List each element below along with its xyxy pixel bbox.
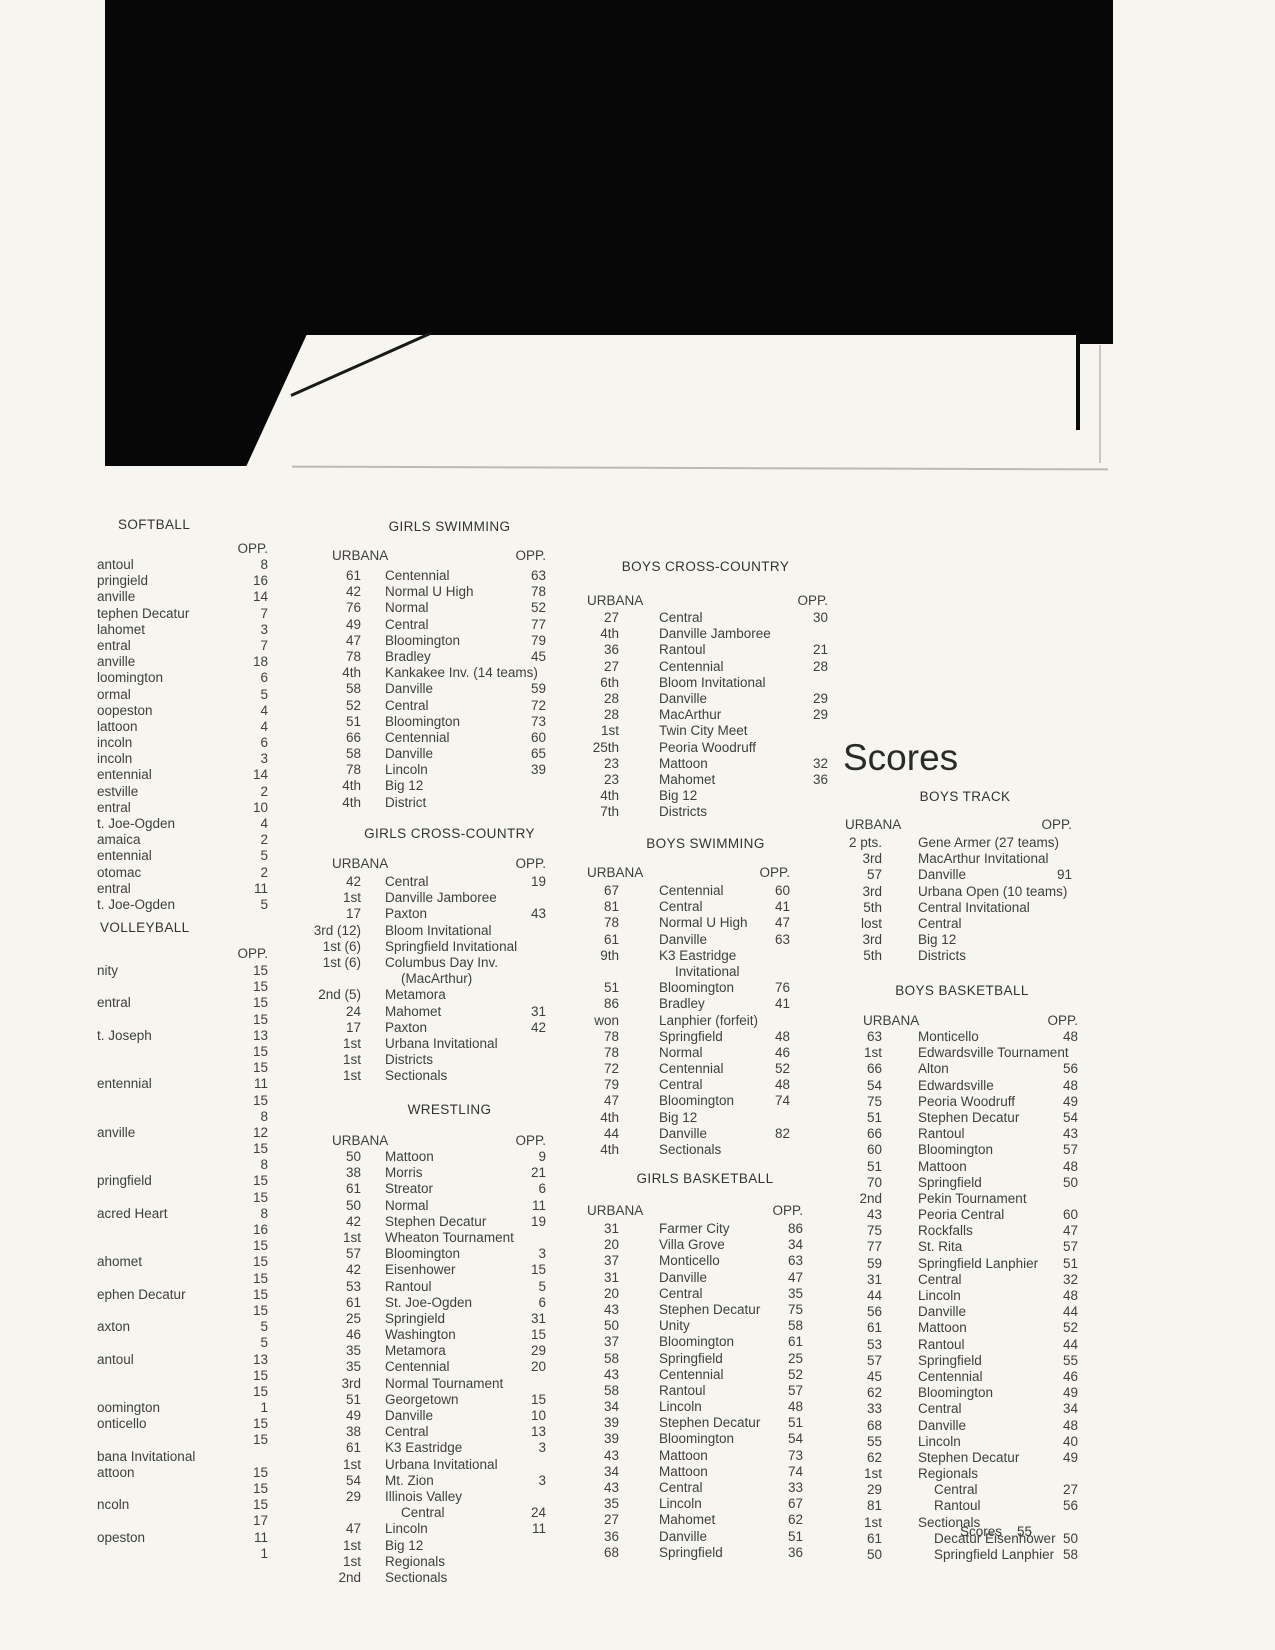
opponent-name: ephen Decatur	[97, 1287, 253, 1303]
opponent-score: 75	[788, 1302, 803, 1318]
opponent-score: 15	[253, 1141, 268, 1157]
score-row: 15	[97, 1044, 268, 1060]
opponent-score: 51	[1063, 1256, 1078, 1272]
opponent-name: Danville	[659, 691, 813, 707]
opponent-name: Rantoul	[659, 1383, 788, 1399]
opponent-name: Invitational	[659, 964, 790, 980]
urbana-score: 20	[557, 1286, 619, 1302]
urbana-score: 51	[838, 1110, 882, 1126]
opponent-score: 57	[1063, 1239, 1078, 1255]
urbana-score: 79	[557, 1077, 619, 1093]
score-row: pringield16	[97, 573, 268, 589]
opponent-name: Springfield Lanphier	[918, 1256, 1063, 1272]
score-row: 36Danville51	[557, 1529, 803, 1545]
opponent-name: Metamora	[385, 1343, 531, 1359]
score-row: 27Mahomet62	[557, 1512, 803, 1528]
score-row: 15	[97, 1432, 268, 1448]
opponent-score: 73	[531, 714, 546, 730]
opponent-name: Georgetown	[385, 1392, 531, 1408]
score-row: 1st (6)Columbus Day Inv.	[313, 955, 546, 971]
opponent-score: 15	[531, 1392, 546, 1408]
opponent-name: Centennial	[659, 1367, 788, 1383]
softball-section: SOFTBALL OPP. antoul8pringield16anville1…	[97, 516, 268, 913]
score-row: t. Joe-Ogden4	[97, 816, 268, 832]
opponent-score: 52	[1063, 1320, 1078, 1336]
score-row: 38Morris21	[313, 1165, 546, 1181]
opponent-name: attoon	[97, 1465, 253, 1481]
score-row: 59Springfield Lanphier51	[838, 1256, 1078, 1272]
opponent-score: 10	[531, 1408, 546, 1424]
urbana-score: 72	[557, 1061, 619, 1077]
opp-column-label: OPP.	[515, 856, 546, 872]
opponent-score: 61	[788, 1334, 803, 1350]
opponent-name: Wheaton Tournament	[385, 1230, 546, 1246]
score-row: 79Central48	[557, 1077, 790, 1093]
boys-cross-country-section: BOYS CROSS-COUNTRY URBANAOPP. 27Central3…	[557, 558, 828, 820]
opponent-name: Districts	[918, 948, 1072, 964]
urbana-score: 1st (6)	[313, 955, 361, 971]
score-row: entennial5	[97, 848, 268, 864]
urbana-score: 1st	[838, 1045, 882, 1061]
opponent-score: 60	[775, 883, 790, 899]
urbana-score: 42	[313, 1214, 361, 1230]
opponent-score: 33	[788, 1480, 803, 1496]
opponent-score: 15	[253, 995, 268, 1011]
score-row: oomington1	[97, 1400, 268, 1416]
urbana-score: 51	[838, 1159, 882, 1175]
score-row: ephen Decatur15	[97, 1287, 268, 1303]
opponent-name: Central	[385, 698, 531, 714]
urbana-score: 42	[313, 874, 361, 890]
opponent-score: 9	[538, 1149, 546, 1165]
opponent-score: 16	[253, 1222, 268, 1238]
opponent-name: MacArthur	[659, 707, 813, 723]
opponent-name: (MacArthur)	[385, 971, 546, 987]
urbana-score: 53	[313, 1279, 361, 1295]
opponent-name: ormal	[97, 687, 260, 703]
scan-artifact-black-notch	[1080, 335, 1113, 344]
opponent-score: 63	[775, 932, 790, 948]
score-row: 75Rockfalls47	[838, 1223, 1078, 1239]
opponent-name: Lincoln	[385, 762, 531, 778]
opponent-score: 6	[260, 670, 268, 686]
score-row: 34Lincoln48	[557, 1399, 803, 1415]
urbana-score: 1st (6)	[313, 939, 361, 955]
opponent-name: Stephen Decatur	[385, 1214, 531, 1230]
urbana-score: 57	[313, 1246, 361, 1262]
column-header-row: URBANAOPP.	[838, 1013, 1078, 1029]
score-row: ormal5	[97, 687, 268, 703]
score-row: 23Mahomet36	[557, 772, 828, 788]
opponent-name: MacArthur Invitational	[918, 851, 1072, 867]
urbana-score: 47	[313, 1521, 361, 1537]
score-row: 37Monticello63	[557, 1253, 803, 1269]
opponent-name: Bloomington	[659, 1093, 775, 1109]
score-row: 15	[97, 979, 268, 995]
score-rows: 31Farmer City8620Villa Grove3437Monticel…	[557, 1221, 803, 1561]
opponent-name: Normal	[385, 1198, 532, 1214]
opponent-name: Rantoul	[659, 642, 813, 658]
score-rows: 27Central304thDanville Jamboree36Rantoul…	[557, 610, 828, 820]
urbana-score: 51	[557, 980, 619, 996]
score-row: 55Lincoln40	[838, 1434, 1078, 1450]
score-row: 15	[97, 1238, 268, 1254]
opponent-score: 15	[253, 1044, 268, 1060]
opponent-score: 46	[1063, 1369, 1078, 1385]
urbana-score: 54	[313, 1473, 361, 1489]
opponent-score: 34	[788, 1237, 803, 1253]
urbana-score: 38	[313, 1424, 361, 1440]
opponent-name: Mahomet	[385, 1004, 531, 1020]
urbana-score: 1st	[557, 723, 619, 739]
opponent-score: 15	[531, 1262, 546, 1278]
opponent-score: 58	[788, 1318, 803, 1334]
opponent-name: K3 Eastridge	[659, 948, 790, 964]
opp-column-label: OPP.	[759, 865, 790, 881]
score-row: entennial11	[97, 1076, 268, 1092]
urbana-score: 35	[313, 1359, 361, 1375]
urbana-score: 34	[557, 1399, 619, 1415]
score-row: 51Mattoon48	[838, 1159, 1078, 1175]
urbana-score: 31	[838, 1272, 882, 1288]
opponent-score: 48	[788, 1399, 803, 1415]
urbana-score: 1st	[313, 1538, 361, 1554]
opponent-score: 31	[531, 1004, 546, 1020]
score-row: 54Edwardsville48	[838, 1078, 1078, 1094]
score-row: 25thPeoria Woodruff	[557, 740, 828, 756]
urbana-score: 53	[838, 1337, 882, 1353]
urbana-score: 43	[557, 1367, 619, 1383]
opponent-name: Columbus Day Inv.	[385, 955, 546, 971]
opponent-score: 15	[253, 1060, 268, 1076]
score-row: 39Stephen Decatur51	[557, 1415, 803, 1431]
score-row: 58Springfield25	[557, 1351, 803, 1367]
urbana-score: 86	[557, 996, 619, 1012]
opponent-score: 12	[253, 1125, 268, 1141]
opponent-score: 46	[775, 1045, 790, 1061]
opponent-name: Mattoon	[659, 756, 813, 772]
opponent-name: Danville Jamboree	[385, 890, 546, 906]
urbana-score: 29	[313, 1489, 361, 1505]
opponent-score: 4	[260, 816, 268, 832]
opponent-score: 65	[531, 746, 546, 762]
opponent-name: Bloom Invitational	[385, 923, 546, 939]
urbana-score: 4th	[313, 795, 361, 811]
opponent-score: 55	[1063, 1353, 1078, 1369]
score-row: 43Peoria Central60	[838, 1207, 1078, 1223]
score-row: 17	[97, 1513, 268, 1529]
score-row: 66Rantoul43	[838, 1126, 1078, 1142]
score-row: 78Bradley45	[313, 649, 546, 665]
urbana-score: 68	[557, 1545, 619, 1561]
score-row: 42Normal U High78	[313, 584, 546, 600]
opponent-score: 56	[1063, 1061, 1078, 1077]
opp-column-label: OPP.	[515, 548, 546, 564]
opponent-score: 76	[775, 980, 790, 996]
score-row: 4thSectionals	[557, 1142, 790, 1158]
opponent-name: otomac	[97, 865, 260, 881]
score-row: 1st (6)Springfield Invitational	[313, 939, 546, 955]
opponent-name: tephen Decatur	[97, 606, 260, 622]
opponent-name: Lincoln	[918, 1434, 1063, 1450]
score-row: 44Lincoln48	[838, 1288, 1078, 1304]
score-rows: nity1515entral1515t. Joseph131515entenni…	[97, 963, 268, 1562]
opponent-score: 29	[813, 691, 828, 707]
opponent-score: 21	[531, 1165, 546, 1181]
score-row: 1stDanville Jamboree	[313, 890, 546, 906]
volleyball-section: VOLLEYBALL OPP. nity1515entral1515t. Jos…	[97, 919, 268, 1562]
score-row: incoln3	[97, 751, 268, 767]
opponent-name: estville	[97, 784, 260, 800]
opponent-score: 60	[531, 730, 546, 746]
urbana-score: 1st	[313, 1036, 361, 1052]
opponent-score: 15	[253, 963, 268, 979]
score-row: pringfield15	[97, 1173, 268, 1189]
score-row: antoul8	[97, 557, 268, 573]
opponent-score: 11	[532, 1198, 546, 1214]
opponent-score: 49	[1063, 1450, 1078, 1466]
urbana-score: 66	[838, 1126, 882, 1142]
opponent-name: Central	[918, 1401, 1063, 1417]
urbana-score: 68	[838, 1418, 882, 1434]
urbana-score: 57	[838, 1353, 882, 1369]
column-header-row: URBANAOPP.	[838, 817, 1072, 833]
urbana-score: 20	[557, 1237, 619, 1253]
score-row: 42Stephen Decatur19	[313, 1214, 546, 1230]
score-row: 15	[97, 1271, 268, 1287]
urbana-score: 2nd	[838, 1191, 882, 1207]
urbana-score: 7th	[557, 804, 619, 820]
opponent-name: Springfield Invitational	[385, 939, 546, 955]
urbana-score: 75	[838, 1094, 882, 1110]
opponent-name: Lanphier (forfeit)	[659, 1013, 790, 1029]
scan-artifact-page-curl-line	[292, 466, 1108, 471]
urbana-score: 50	[557, 1318, 619, 1334]
urbana-score: 43	[557, 1480, 619, 1496]
score-row: 78Lincoln39	[313, 762, 546, 778]
opponent-score: 67	[788, 1496, 803, 1512]
score-row: 51Georgetown15	[313, 1392, 546, 1408]
urbana-score: 1st	[313, 1068, 361, 1084]
urbana-score: 49	[313, 1408, 361, 1424]
urbana-score: 3rd	[313, 1376, 361, 1392]
score-row: anville12	[97, 1125, 268, 1141]
opponent-score: 41	[775, 996, 790, 1012]
opponent-score: 15	[253, 1190, 268, 1206]
score-row: 76Normal52	[313, 600, 546, 616]
score-row: 35Centennial20	[313, 1359, 546, 1375]
opponent-name: entral	[97, 638, 260, 654]
urbana-score: 38	[313, 1165, 361, 1181]
scan-artifact-black-left	[105, 334, 307, 466]
urbana-score: 39	[557, 1415, 619, 1431]
opponent-name: Sectionals	[659, 1142, 790, 1158]
score-row: 9thK3 Eastridge	[557, 948, 790, 964]
urbana-score: 5th	[838, 948, 882, 964]
opponent-name: Stephen Decatur	[918, 1110, 1063, 1126]
opponent-name: Centennial	[659, 659, 813, 675]
opponent-score: 50	[1063, 1175, 1078, 1191]
opponent-name: Monticello	[659, 1253, 788, 1269]
score-row: 75Peoria Woodruff49	[838, 1094, 1078, 1110]
urbana-score: 59	[838, 1256, 882, 1272]
section-title: GIRLS SWIMMING	[313, 518, 546, 535]
score-row: 1stWheaton Tournament	[313, 1230, 546, 1246]
score-row: loomington6	[97, 670, 268, 686]
score-row: 3rdNormal Tournament	[313, 1376, 546, 1392]
urbana-score: 31	[557, 1221, 619, 1237]
urbana-score: 29	[838, 1482, 882, 1498]
opponent-name: Central Invitational	[918, 900, 1072, 916]
score-row: 1stTwin City Meet	[557, 723, 828, 739]
score-row: 50Unity58	[557, 1318, 803, 1334]
opponent-name: Danville	[385, 681, 531, 697]
urbana-score: 51	[313, 714, 361, 730]
urbana-score: 57	[838, 867, 882, 883]
opponent-name: Lincoln	[659, 1496, 788, 1512]
score-row: 4thBig 12	[313, 778, 546, 794]
score-row: 57Danville91	[838, 867, 1072, 883]
opponent-name: Metamora	[385, 987, 546, 1003]
section-title: GIRLS CROSS-COUNTRY	[313, 825, 546, 842]
opponent-name: axton	[97, 1319, 260, 1335]
urbana-score: 43	[557, 1302, 619, 1318]
opponent-score: 25	[788, 1351, 803, 1367]
opponent-name: Farmer City	[659, 1221, 788, 1237]
opponent-score: 32	[813, 756, 828, 772]
opponent-name: acred Heart	[97, 1206, 260, 1222]
opponent-score: 49	[1063, 1094, 1078, 1110]
opponent-name: Rantoul	[918, 1498, 1063, 1514]
opponent-score: 15	[253, 1271, 268, 1287]
urbana-score: 1st	[313, 1230, 361, 1246]
opp-column-label: OPP.	[797, 593, 828, 609]
score-row: 1stSectionals	[313, 1068, 546, 1084]
opponent-score: 36	[788, 1545, 803, 1561]
urbana-score: 37	[557, 1334, 619, 1350]
opponent-score: 48	[775, 1029, 790, 1045]
opponent-name: pringfield	[97, 1173, 253, 1189]
score-row: 46Washington15	[313, 1327, 546, 1343]
score-row: 1stUrbana Invitational	[313, 1457, 546, 1473]
score-row: entennial14	[97, 767, 268, 783]
score-row: 61Centennial63	[313, 568, 546, 584]
urbana-score: 31	[557, 1270, 619, 1286]
opponent-name: antoul	[97, 557, 260, 573]
score-row: 1stRegionals	[838, 1466, 1078, 1482]
column-header-row: OPP.	[97, 541, 268, 557]
opponent-name: Unity	[659, 1318, 788, 1334]
opponent-name: Danville	[918, 1304, 1063, 1320]
opponent-name: Alton	[918, 1061, 1063, 1077]
urbana-score: 76	[313, 600, 361, 616]
urbana-score: 78	[557, 1045, 619, 1061]
urbana-score: 66	[313, 730, 361, 746]
boys-swimming-section: BOYS SWIMMING URBANAOPP. 67Centennial608…	[557, 835, 790, 1158]
opponent-score: 79	[531, 633, 546, 649]
score-row: 61St. Joe-Ogden6	[313, 1295, 546, 1311]
opponent-score: 3	[538, 1440, 546, 1456]
score-row: 31Farmer City86	[557, 1221, 803, 1237]
urbana-column-label: URBANA	[332, 1133, 388, 1149]
score-row: 43Centennial52	[557, 1367, 803, 1383]
score-row: oopeston4	[97, 703, 268, 719]
opponent-score: 6	[538, 1181, 546, 1197]
opponent-name: Big 12	[385, 1538, 546, 1554]
urbana-score: 4th	[313, 665, 361, 681]
score-row: 78Normal46	[557, 1045, 790, 1061]
column-header-row: URBANAOPP.	[557, 593, 828, 609]
score-row: 2 pts.Gene Armer (27 teams)	[838, 835, 1072, 851]
opponent-name: entral	[97, 995, 253, 1011]
opponent-name: entennial	[97, 848, 260, 864]
opponent-name: Normal U High	[659, 915, 775, 931]
urbana-score: 50	[838, 1547, 882, 1563]
opponent-name: Central	[385, 617, 531, 633]
score-row: 2nd (5)Metamora	[313, 987, 546, 1003]
score-row: 28Danville29	[557, 691, 828, 707]
opponent-name: onticello	[97, 1416, 253, 1432]
opp-column-label: OPP.	[237, 541, 268, 557]
score-row: 37Bloomington61	[557, 1334, 803, 1350]
opponent-score: 16	[253, 573, 268, 589]
footer-label: Scores	[960, 1524, 1002, 1539]
urbana-score: 43	[557, 1448, 619, 1464]
opponent-score: 2	[260, 784, 268, 800]
opponent-name: Lincoln	[659, 1399, 788, 1415]
section-title: BOYS BASKETBALL	[838, 982, 1078, 999]
score-row: attoon15	[97, 1465, 268, 1481]
opponent-name: anville	[97, 589, 253, 605]
score-row: 70Springfield50	[838, 1175, 1078, 1191]
score-row: 6thBloom Invitational	[557, 675, 828, 691]
urbana-score: 58	[557, 1351, 619, 1367]
opponent-name: Springfield	[659, 1351, 788, 1367]
opponent-name: lahomet	[97, 622, 260, 638]
urbana-score: 36	[557, 1529, 619, 1545]
urbana-score: 54	[838, 1078, 882, 1094]
opponent-name: Danville Jamboree	[659, 626, 828, 642]
score-row: 57Bloomington3	[313, 1246, 546, 1262]
urbana-score: 4th	[313, 778, 361, 794]
opponent-score: 8	[260, 1157, 268, 1173]
score-row: lahomet3	[97, 622, 268, 638]
urbana-column-label: URBANA	[587, 593, 643, 609]
score-row: 66Alton56	[838, 1061, 1078, 1077]
score-row: 15	[97, 1368, 268, 1384]
score-rows: 42Central191stDanville Jamboree17Paxton4…	[313, 874, 546, 1084]
section-title: BOYS SWIMMING	[557, 835, 790, 852]
opponent-score: 43	[531, 906, 546, 922]
opponent-score: 5	[260, 1335, 268, 1351]
opponent-name: ncoln	[97, 1497, 253, 1513]
score-row: 43Mattoon73	[557, 1448, 803, 1464]
urbana-score: 3rd	[838, 884, 882, 900]
urbana-score: 42	[313, 584, 361, 600]
score-row: Invitational	[557, 964, 790, 980]
column-header-row: URBANAOPP.	[557, 1203, 803, 1219]
opponent-score: 1	[260, 1400, 268, 1416]
score-row: 58Danville65	[313, 746, 546, 762]
opponent-name: bana Invitational	[97, 1449, 268, 1465]
score-row: 5	[97, 1335, 268, 1351]
urbana-score: 44	[838, 1288, 882, 1304]
urbana-score: 25	[313, 1311, 361, 1327]
opponent-name: Edwardsville Tournament	[918, 1045, 1078, 1061]
score-row: 63Monticello48	[838, 1029, 1078, 1045]
urbana-score: 62	[838, 1450, 882, 1466]
urbana-score: 58	[557, 1383, 619, 1399]
